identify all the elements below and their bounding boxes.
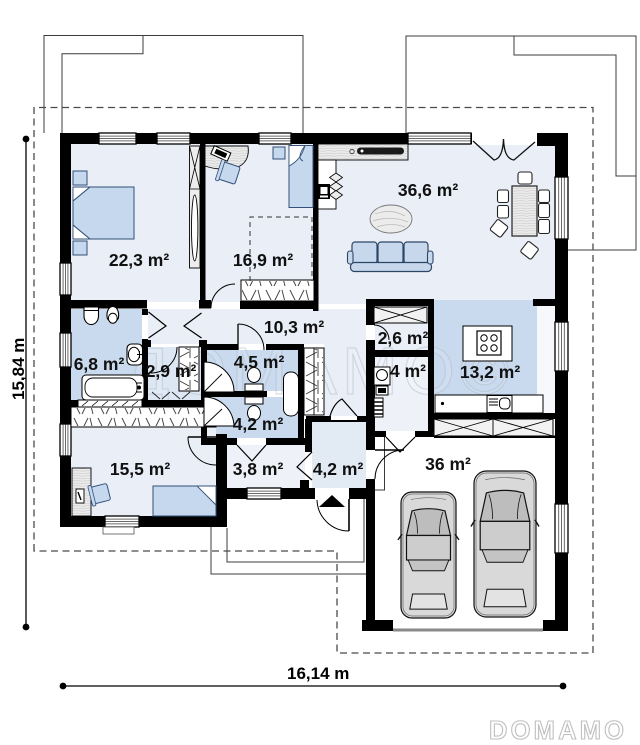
svg-text:10,3 m²: 10,3 m² xyxy=(264,317,324,337)
svg-text:15,5 m²: 15,5 m² xyxy=(110,459,170,479)
svg-text:13,2 m²: 13,2 m² xyxy=(460,362,520,382)
svg-text:4,5 m²: 4,5 m² xyxy=(234,352,285,372)
svg-text:2,9 m²: 2,9 m² xyxy=(146,361,197,381)
svg-text:DOMAMO: DOMAMO xyxy=(489,717,627,745)
svg-text:16,9 m²: 16,9 m² xyxy=(233,250,293,270)
svg-text:36,6 m²: 36,6 m² xyxy=(398,180,458,200)
svg-text:6,8 m²: 6,8 m² xyxy=(74,354,125,374)
svg-text:36 m²: 36 m² xyxy=(425,454,471,474)
svg-text:4 m²: 4 m² xyxy=(390,361,426,381)
svg-text:4,2 m²: 4,2 m² xyxy=(313,459,364,479)
svg-text:3,8 m²: 3,8 m² xyxy=(233,459,284,479)
svg-text:22,3 m²: 22,3 m² xyxy=(109,250,169,270)
svg-text:2,6 m²: 2,6 m² xyxy=(378,328,429,348)
svg-text:16,14 m: 16,14 m xyxy=(287,664,349,683)
svg-text:15,84 m: 15,84 m xyxy=(9,338,28,400)
svg-text:4,2 m²: 4,2 m² xyxy=(233,414,284,434)
